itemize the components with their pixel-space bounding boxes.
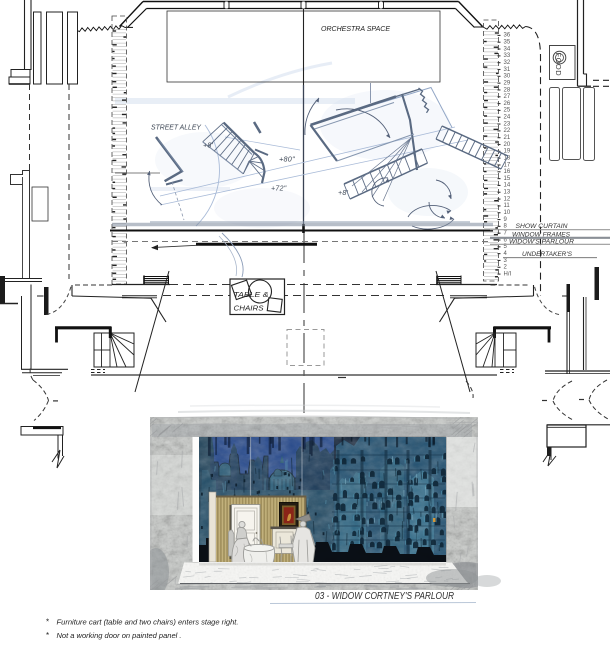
svg-text:+8': +8' bbox=[338, 190, 349, 197]
svg-text:27: 27 bbox=[504, 94, 511, 100]
svg-text:03 - WIDOW CORTNEY'S PARLOUR: 03 - WIDOW CORTNEY'S PARLOUR bbox=[315, 591, 454, 602]
svg-text:2: 2 bbox=[504, 265, 508, 271]
svg-text:33: 33 bbox=[504, 53, 511, 59]
svg-text:26: 26 bbox=[504, 101, 511, 107]
svg-text:36: 36 bbox=[504, 33, 511, 39]
svg-text:25: 25 bbox=[504, 108, 511, 114]
svg-text:CHAIRS: CHAIRS bbox=[234, 304, 264, 313]
svg-text:15: 15 bbox=[504, 176, 511, 182]
svg-text:H/I: H/I bbox=[504, 271, 512, 277]
svg-text:*: * bbox=[46, 631, 49, 640]
svg-text:ORCHESTRA SPACE: ORCHESTRA SPACE bbox=[321, 24, 391, 33]
svg-text:Furniture cart (table and two: Furniture cart (table and two chairs) en… bbox=[57, 618, 239, 627]
svg-text:STREET ALLEY: STREET ALLEY bbox=[151, 123, 202, 132]
svg-text:34: 34 bbox=[504, 46, 511, 52]
svg-text:5: 5 bbox=[504, 244, 508, 250]
svg-text:3: 3 bbox=[504, 258, 508, 264]
svg-text:22: 22 bbox=[504, 128, 511, 134]
svg-text:+72": +72" bbox=[271, 186, 287, 193]
svg-text:TABLE &: TABLE & bbox=[234, 290, 269, 299]
svg-text:+8': +8' bbox=[203, 143, 214, 150]
svg-text:14: 14 bbox=[504, 183, 511, 189]
svg-text:29: 29 bbox=[504, 80, 511, 86]
svg-text:SHOW CURTAIN: SHOW CURTAIN bbox=[516, 223, 568, 230]
svg-text:FOOD: FOOD bbox=[554, 53, 563, 77]
svg-text:20: 20 bbox=[504, 142, 511, 148]
svg-text:35: 35 bbox=[504, 40, 511, 46]
svg-text:23: 23 bbox=[504, 121, 511, 127]
svg-text:11: 11 bbox=[504, 203, 511, 209]
svg-text:*: * bbox=[46, 618, 49, 627]
svg-text:30: 30 bbox=[504, 74, 511, 80]
svg-text:16: 16 bbox=[504, 169, 511, 175]
svg-text:32: 32 bbox=[504, 60, 511, 66]
svg-text:UNDERTAKER'S: UNDERTAKER'S bbox=[522, 251, 572, 258]
svg-text:7: 7 bbox=[504, 230, 508, 236]
svg-text:21: 21 bbox=[504, 135, 511, 141]
svg-text:13: 13 bbox=[504, 190, 511, 196]
svg-text:+80": +80" bbox=[279, 155, 295, 164]
svg-text:Not a working door on painted: Not a working door on painted panel . bbox=[57, 631, 182, 640]
svg-text:12: 12 bbox=[504, 196, 511, 202]
svg-text:24: 24 bbox=[504, 115, 511, 121]
svg-text:9: 9 bbox=[504, 217, 508, 223]
svg-text:4: 4 bbox=[504, 251, 508, 257]
svg-text:10: 10 bbox=[504, 210, 511, 216]
svg-text:31: 31 bbox=[504, 67, 511, 73]
svg-text:WIDOW'S PARLOUR: WIDOW'S PARLOUR bbox=[509, 238, 574, 245]
svg-text:8: 8 bbox=[504, 224, 508, 230]
svg-text:28: 28 bbox=[504, 87, 511, 93]
